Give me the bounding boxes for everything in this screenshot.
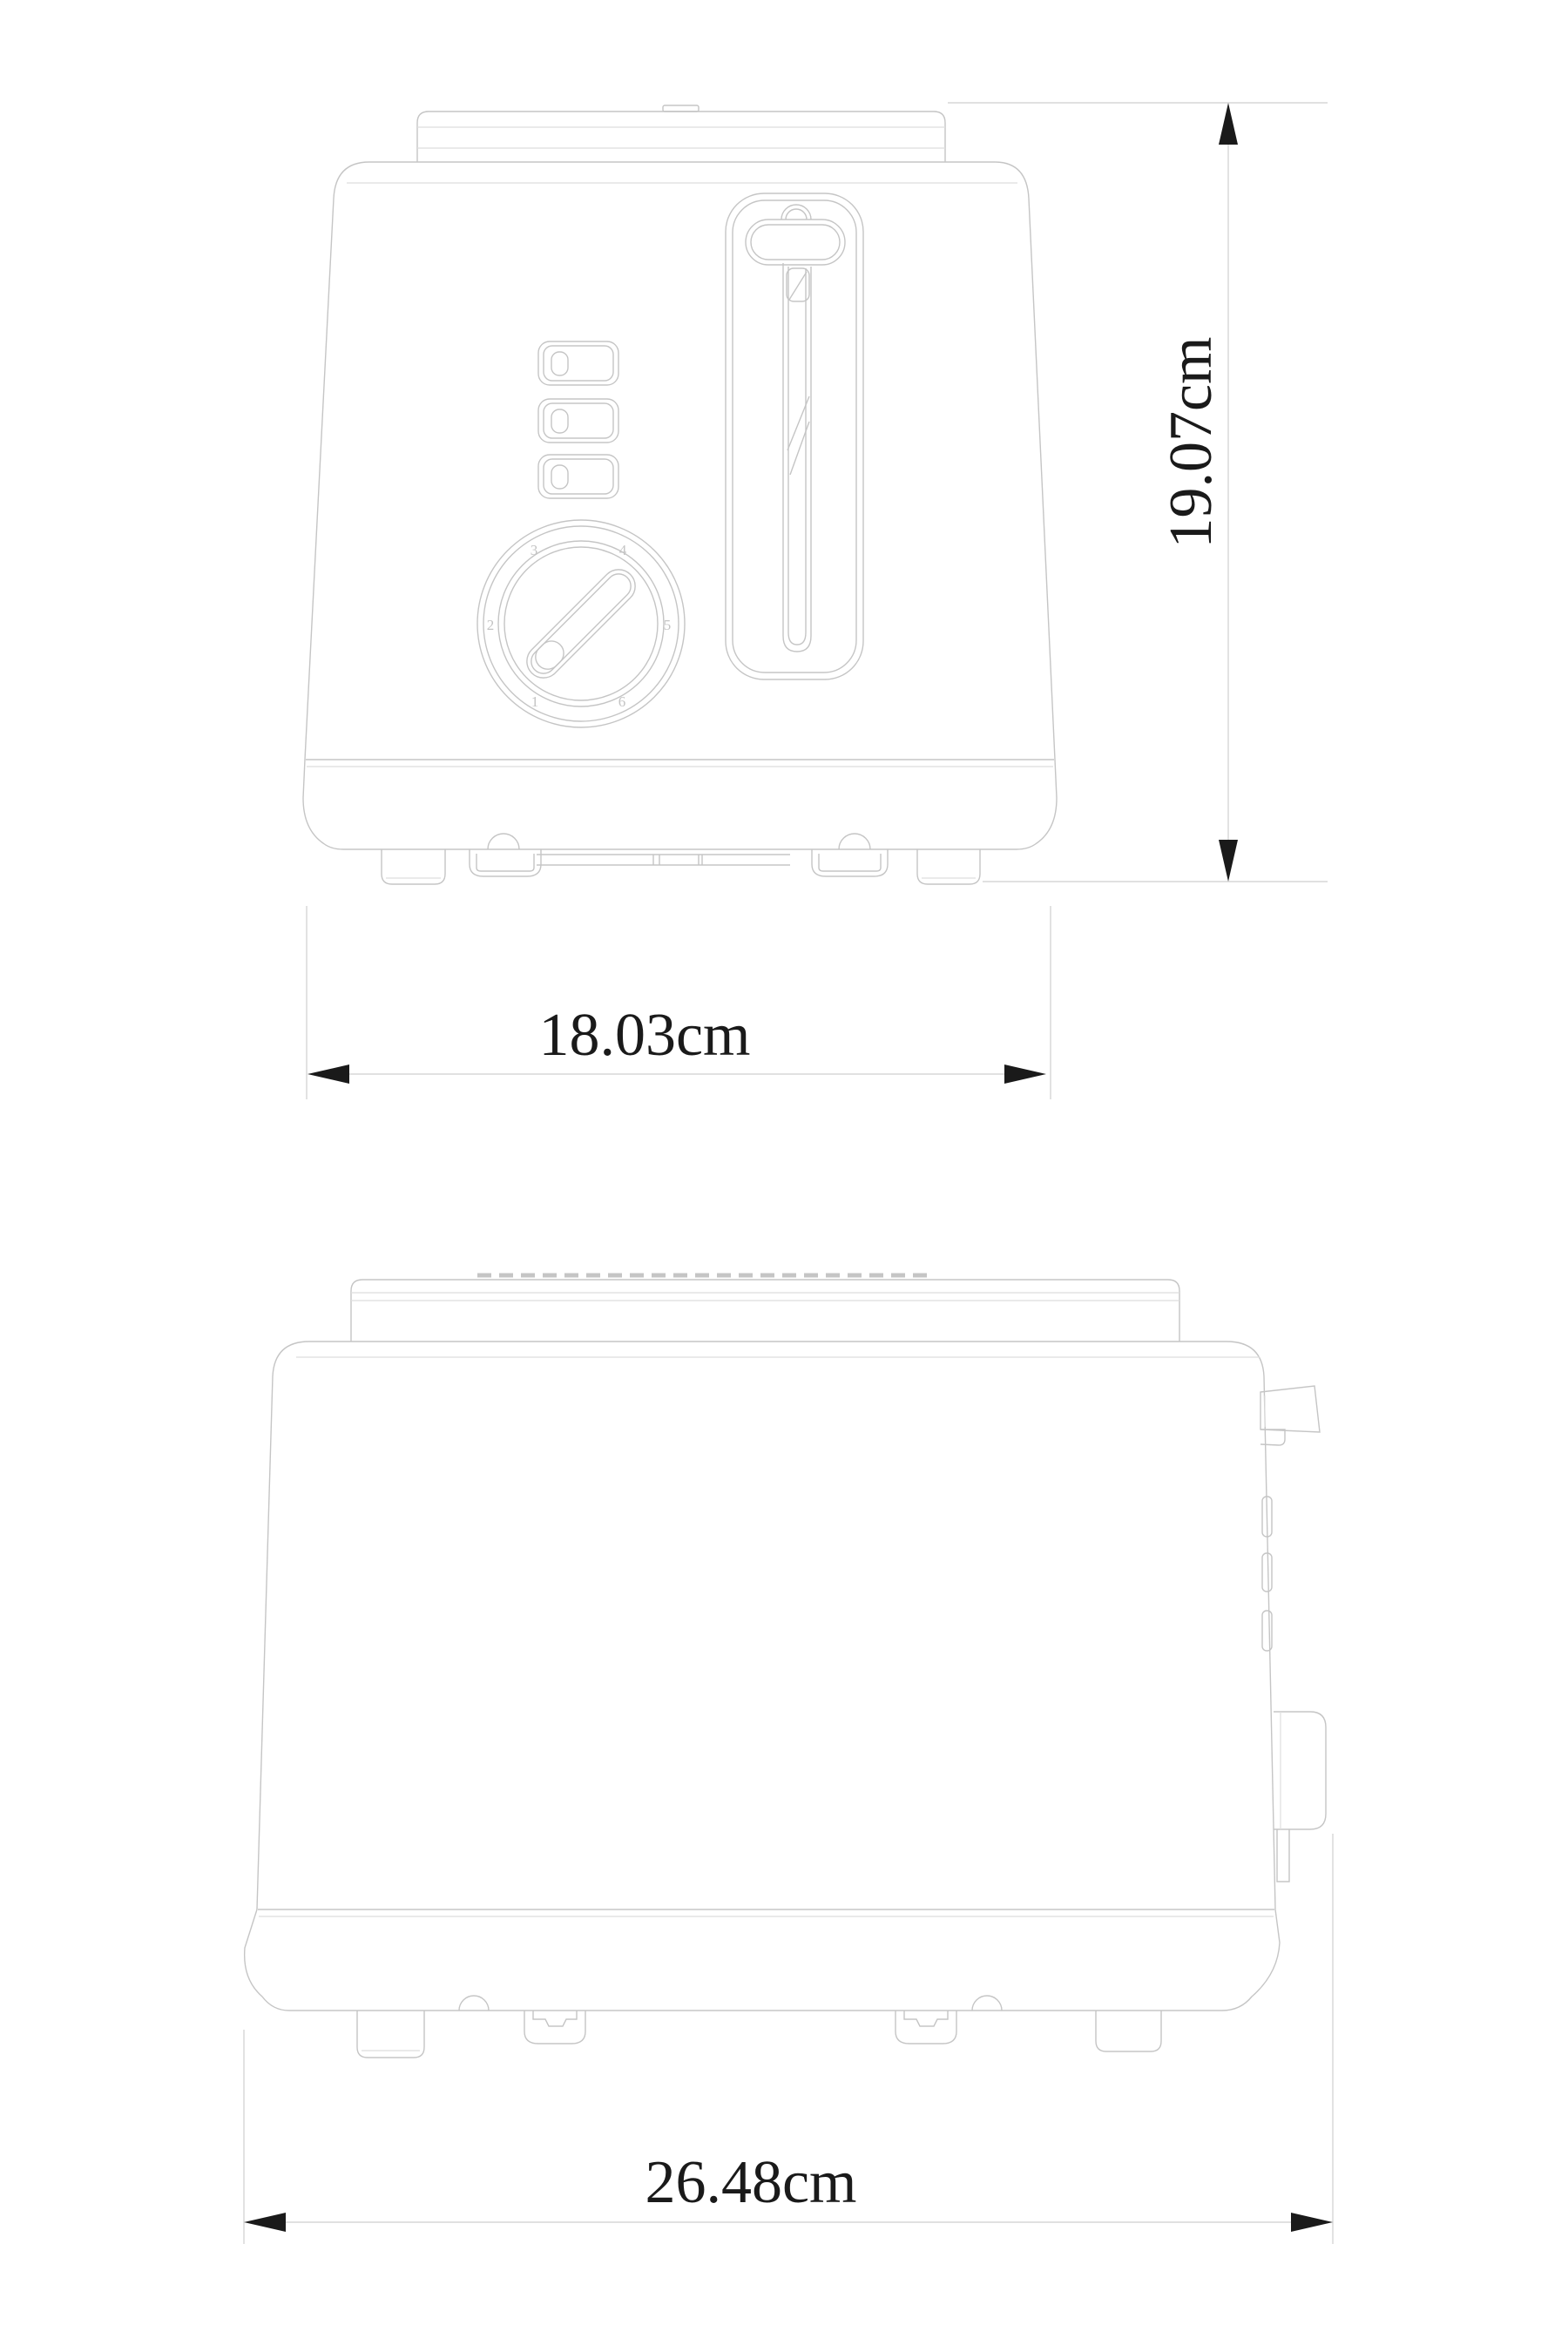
depth-dimension-label: 26.48cm: [645, 2149, 856, 2216]
side-left-clip: [524, 2011, 585, 2044]
dial-number-4: 4: [619, 542, 627, 558]
dial-number-5: 5: [664, 617, 672, 633]
front-view-light-details: [307, 127, 1053, 878]
width-dimension-label: 18.03cm: [538, 1002, 750, 1069]
lever-panel-outer: [726, 193, 863, 679]
side-lever-knob: [1260, 1386, 1320, 1432]
width-dimension-ink: 18.03cm: [308, 1002, 1046, 1084]
dial-knob-inner: [526, 569, 636, 679]
side-button-bump-2: [1262, 1553, 1272, 1592]
dial-number-2: 2: [487, 617, 495, 633]
side-right-clip: [896, 2011, 956, 2044]
button-3-led: [551, 465, 568, 489]
side-right-bump-arc: [972, 1996, 1002, 2011]
front-right-bump-arc: [839, 834, 870, 849]
dial-number-6: 6: [618, 693, 626, 710]
front-left-foot: [382, 849, 445, 884]
front-base-outline: [303, 760, 1057, 849]
height-dimension-label: 19.07cm: [1158, 336, 1225, 548]
front-right-foot: [917, 849, 980, 884]
height-arrowhead-bottom: [1219, 840, 1238, 882]
lever-arch-inner: [786, 209, 807, 220]
side-base-outline: [245, 1909, 1280, 2011]
button-1-inner: [544, 346, 613, 381]
button-1-led: [551, 352, 568, 375]
side-view-light-details: [259, 1293, 1281, 2051]
dial-ring-outer: [477, 520, 685, 727]
side-view: [245, 1275, 1326, 2058]
side-button-bump-3: [1262, 1611, 1272, 1651]
dial-number-1: 1: [531, 693, 539, 710]
front-underside-bar: [537, 855, 790, 865]
width-arrowhead-right: [1004, 1064, 1046, 1084]
button-1: [538, 341, 618, 385]
dial-ring-outer-inner-line: [483, 526, 679, 721]
front-right-clip: [812, 849, 888, 876]
side-right-foot: [1096, 2011, 1161, 2051]
button-2: [538, 399, 618, 443]
toaster-technical-drawing: 1 2 3 4 5 6 19.07cm 18.03cm: [0, 0, 1568, 2352]
depth-arrowhead-left: [244, 2213, 286, 2232]
depth-dimension-ink: 26.48cm: [244, 2149, 1333, 2232]
side-dial-knob-step: [1277, 1829, 1289, 1882]
front-left-bump-arc: [488, 834, 519, 849]
front-left-clip: [470, 849, 541, 876]
depth-arrowhead-right: [1291, 2213, 1333, 2232]
side-body-outline: [257, 1342, 1275, 1909]
lever-panel-inner: [733, 200, 856, 672]
height-dimension: [948, 103, 1328, 882]
dial-number-3: 3: [531, 542, 538, 558]
dial-knob-indicator: [531, 636, 569, 674]
side-dial-knob: [1274, 1712, 1326, 1829]
front-view: [303, 105, 1057, 884]
dial-face-outer: [498, 541, 664, 706]
lever-track-outer: [783, 263, 811, 652]
width-arrowhead-left: [308, 1064, 349, 1084]
button-3: [538, 455, 618, 498]
front-body-outline: [305, 162, 1055, 760]
dial-knob-outer: [520, 563, 642, 685]
dial-numbers: 1 2 3 4 5 6: [487, 542, 672, 710]
front-top-lip-notch: [663, 105, 699, 112]
side-left-bump-arc: [459, 1996, 489, 2011]
lever-knob-inner: [751, 225, 840, 260]
button-2-led: [551, 409, 568, 433]
side-top-lip-outline: [351, 1280, 1179, 1342]
dial-face-inner: [504, 547, 658, 700]
button-3-inner: [544, 459, 613, 494]
button-2-inner: [544, 403, 613, 438]
browning-dial: [477, 520, 685, 727]
height-arrowhead-top: [1219, 103, 1238, 145]
front-buttons: [538, 341, 618, 498]
front-top-lip-outline: [417, 112, 945, 162]
height-dimension-ink: 19.07cm: [1158, 103, 1238, 882]
lever-latch-diagonal: [789, 272, 807, 300]
side-lever-knob-lip: [1260, 1429, 1285, 1445]
technical-drawing-page: 1 2 3 4 5 6 19.07cm 18.03cm: [0, 0, 1568, 2352]
